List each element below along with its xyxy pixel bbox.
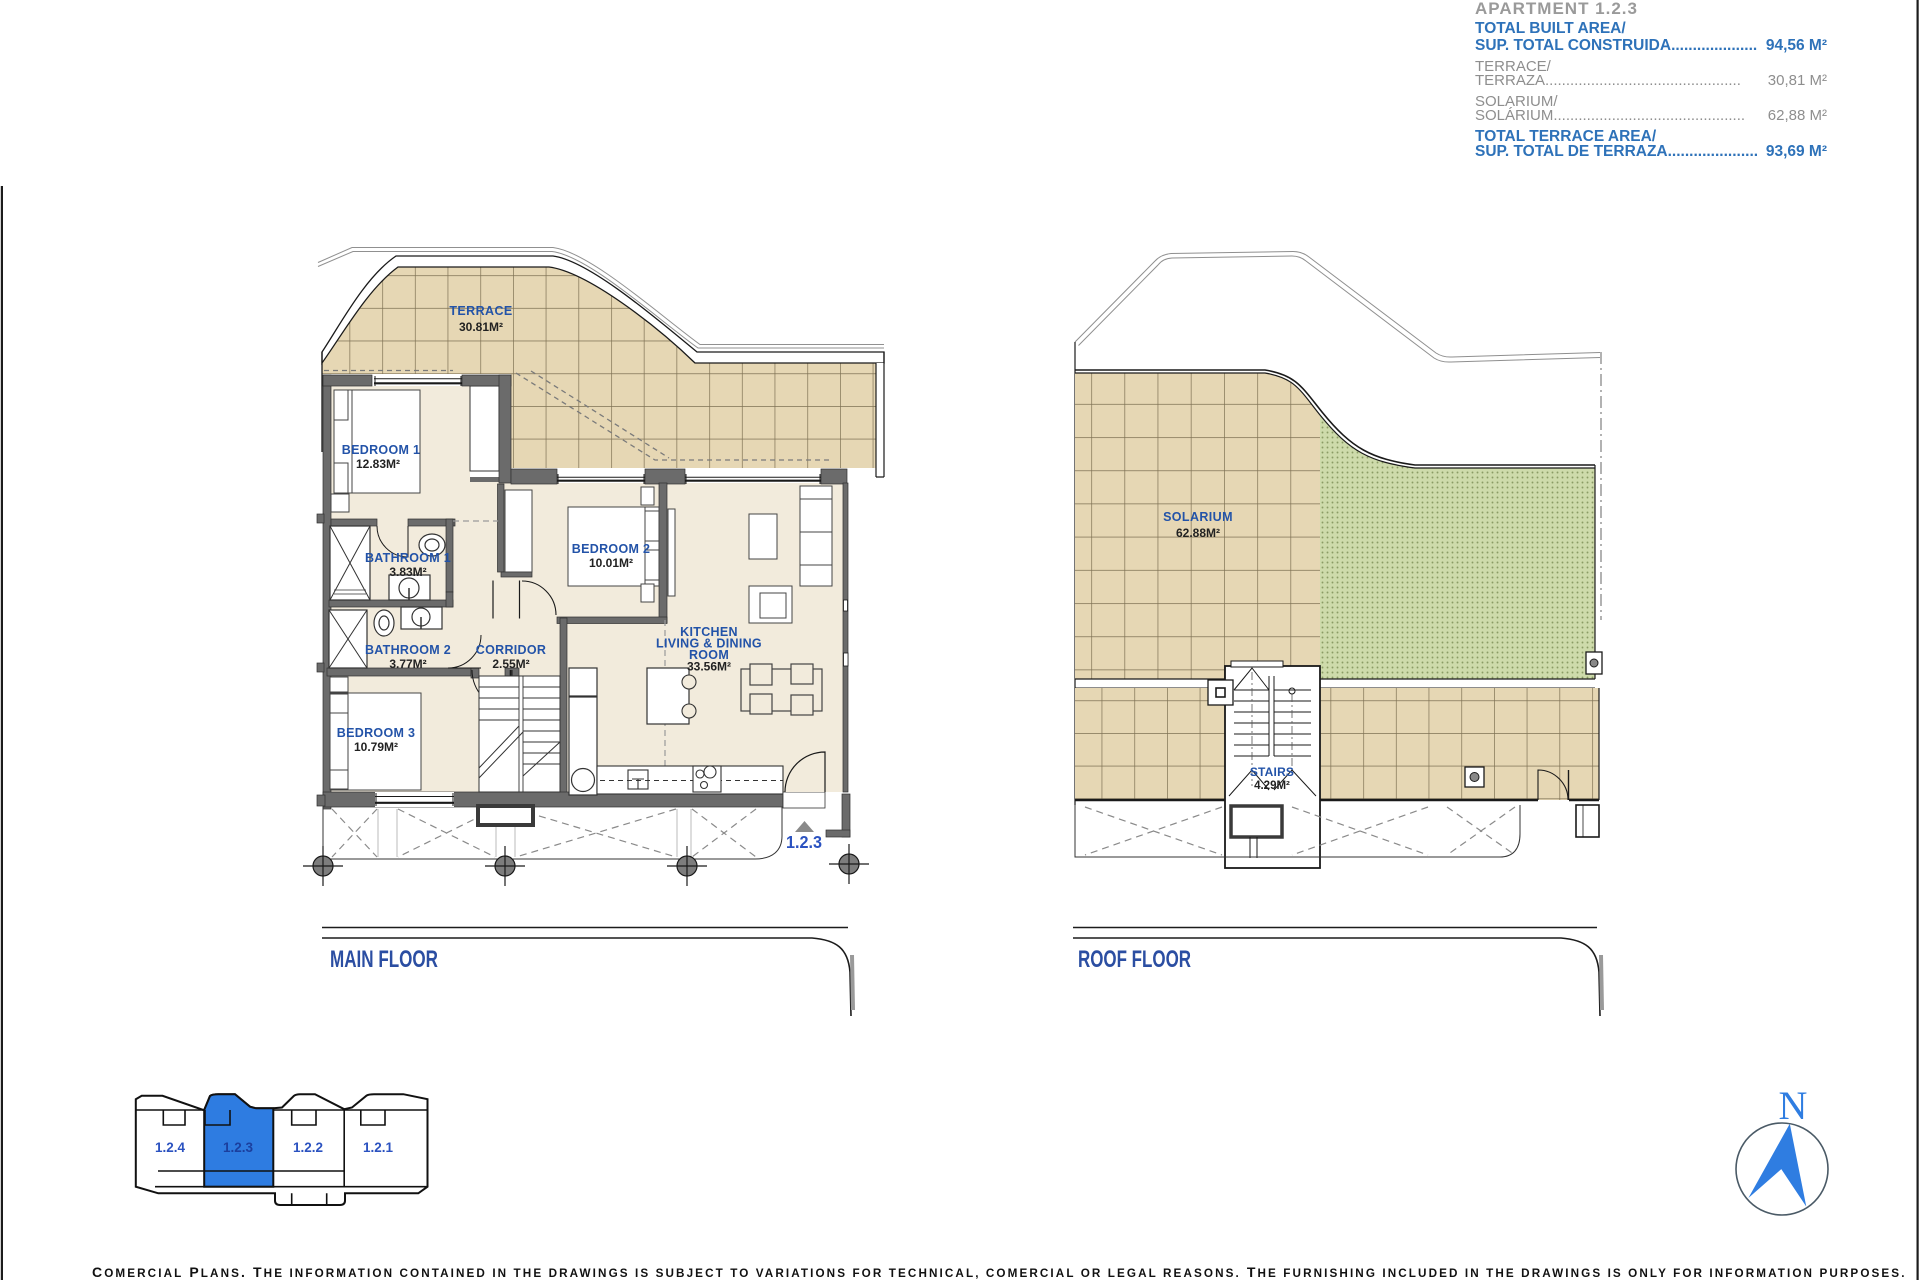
svg-text:SOLARIUM: SOLARIUM [1163, 510, 1233, 524]
svg-text:4.29M²: 4.29M² [1254, 780, 1290, 792]
svg-text:CORRIDOR: CORRIDOR [476, 643, 546, 657]
svg-text:30.81M²: 30.81M² [459, 320, 503, 334]
svg-text:BEDROOM 3: BEDROOM 3 [337, 726, 415, 740]
svg-text:94,56 M²: 94,56 M² [1766, 37, 1827, 54]
svg-text:1.2.2: 1.2.2 [293, 1140, 323, 1155]
svg-text:33.56M²: 33.56M² [687, 660, 731, 674]
svg-text:1.2.1: 1.2.1 [363, 1140, 394, 1155]
svg-text:1.2.4: 1.2.4 [155, 1140, 186, 1155]
svg-text:SUP. TOTAL CONSTRUIDA.........: SUP. TOTAL CONSTRUIDA...................… [1475, 37, 1757, 54]
svg-text:10.79M²: 10.79M² [354, 740, 398, 754]
svg-text:BATHROOM 2: BATHROOM 2 [365, 643, 451, 657]
svg-text:SUP. TOTAL DE TERRAZA.........: SUP. TOTAL DE TERRAZA...................… [1475, 143, 1758, 160]
svg-text:10.01M²: 10.01M² [589, 556, 633, 570]
svg-text:3.77M²: 3.77M² [389, 657, 426, 671]
svg-text:BATHROOM 1: BATHROOM 1 [365, 551, 451, 565]
svg-text:APARTMENT 1.2.3: APARTMENT 1.2.3 [1475, 0, 1638, 18]
svg-text:STAIRS: STAIRS [1250, 765, 1294, 779]
svg-text:MAIN FLOOR: MAIN FLOOR [330, 946, 438, 973]
svg-text:3.83M²: 3.83M² [389, 565, 426, 579]
svg-text:2.55M²: 2.55M² [492, 657, 529, 671]
svg-text:62,88 M²: 62,88 M² [1768, 107, 1827, 124]
svg-text:TOTAL BUILT AREA/: TOTAL BUILT AREA/ [1475, 20, 1626, 37]
svg-text:SOLÁRIUM......................: SOLÁRIUM................................… [1475, 107, 1745, 124]
svg-text:1.2.3: 1.2.3 [786, 832, 822, 852]
svg-text:COMERCIAL PLANS. THE INFORMATI: COMERCIAL PLANS. THE INFORMATION CONTAIN… [92, 1264, 1907, 1280]
svg-text:N: N [1779, 1083, 1808, 1128]
svg-text:30,81 M²: 30,81 M² [1768, 72, 1827, 89]
svg-text:1.2.3: 1.2.3 [223, 1140, 254, 1155]
svg-text:TERRAZA.......................: TERRAZA.................................… [1475, 72, 1741, 89]
svg-text:TERRACE: TERRACE [449, 304, 512, 318]
svg-text:BEDROOM 2: BEDROOM 2 [572, 542, 650, 556]
svg-text:BEDROOM 1: BEDROOM 1 [342, 443, 420, 457]
svg-text:62.88M²: 62.88M² [1176, 526, 1220, 540]
svg-text:12.83M²: 12.83M² [356, 457, 400, 471]
svg-text:ROOF FLOOR: ROOF FLOOR [1078, 946, 1191, 973]
svg-text:93,69 M²: 93,69 M² [1766, 143, 1827, 160]
